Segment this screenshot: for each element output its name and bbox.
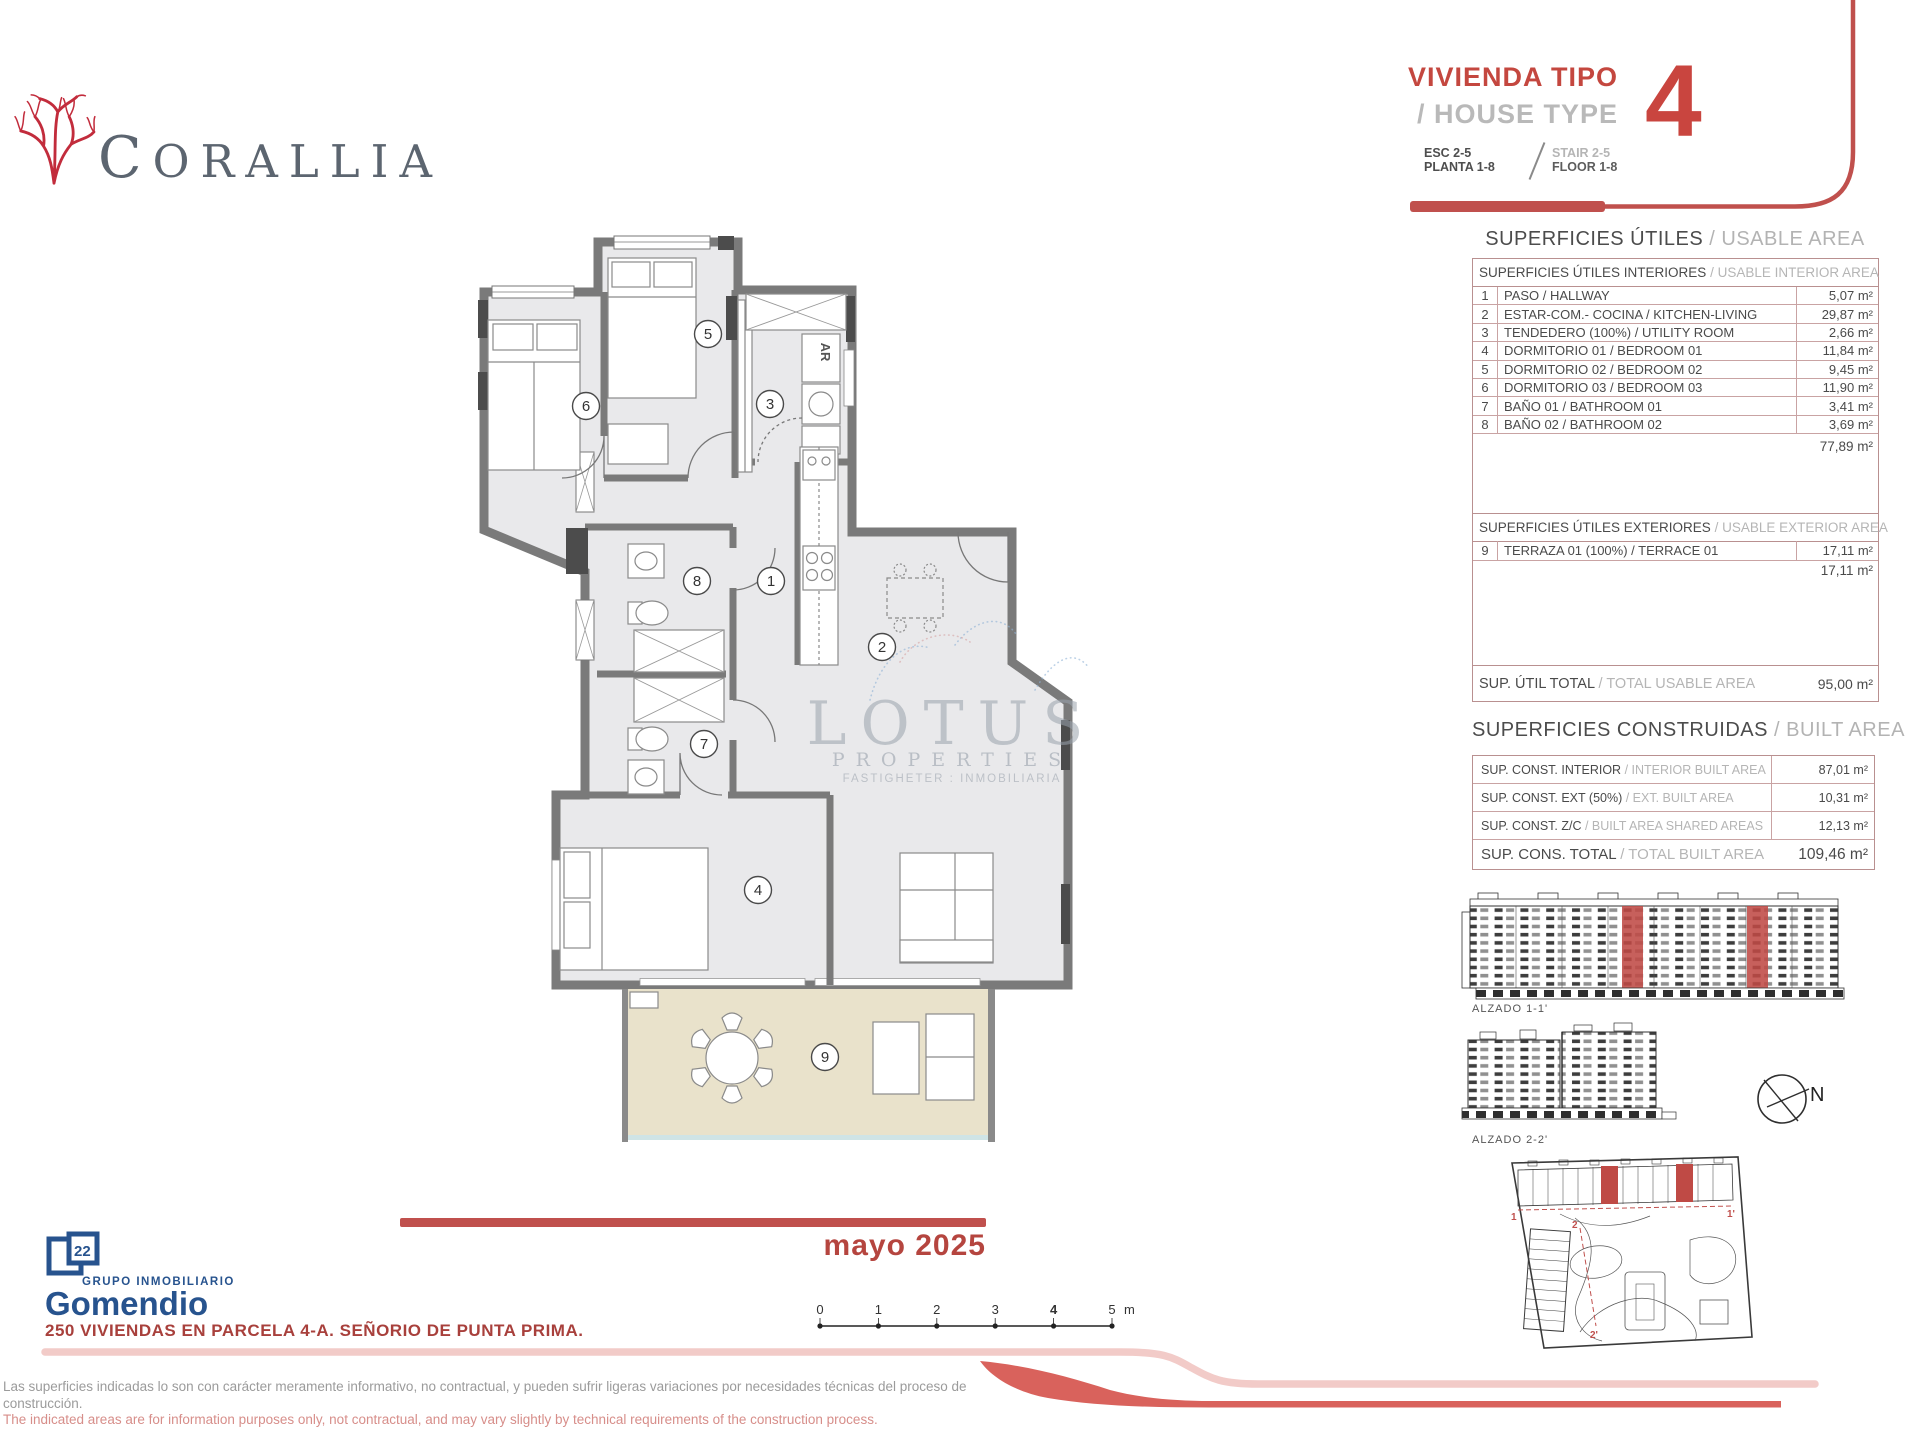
gomendio-icon: 22 xyxy=(46,1231,100,1281)
exterior-header: SUPERFICIES ÚTILES EXTERIORES / USABLE E… xyxy=(1473,513,1878,542)
room-label-4: 4 xyxy=(754,882,762,899)
elevation-1: ALZADO 1-1' xyxy=(1462,893,1844,1015)
sliding-door xyxy=(640,979,805,986)
built-area-title: SUPERFICIES CONSTRUIDAS / BUILT AREA xyxy=(1472,719,1878,742)
usable-grand-total: SUP. ÚTIL TOTAL / TOTAL USABLE AREA 95,0… xyxy=(1473,665,1878,701)
ar-label: AR xyxy=(818,343,833,362)
brand-name: CORALLIA xyxy=(98,130,443,187)
scale-bar: 0 1 2 3 4 5 m xyxy=(780,1295,1160,1340)
watermark-line2: PROPERTIES xyxy=(832,749,1072,771)
sliding-door xyxy=(815,979,980,986)
room-label-8: 8 xyxy=(693,573,701,590)
room-label-7: 7 xyxy=(700,736,708,753)
elevation-2: ALZADO 2-2' xyxy=(1462,1023,1676,1146)
usable-area-table: SUPERFICIES ÚTILES INTERIORES / USABLE I… xyxy=(1472,258,1879,702)
disclaimer-es-line1: Las superficies indicadas lo son con car… xyxy=(3,1379,967,1394)
room-label-5: 5 xyxy=(704,326,712,343)
scale-tick-1: 1 xyxy=(875,1302,882,1317)
table-row: 7 BAÑO 01 / BATHROOM 01 3,41 m² xyxy=(1473,397,1878,415)
alzado2-label: ALZADO 2-2' xyxy=(1472,1134,1548,1146)
table-row: SUP. CONST. Z/C / BUILT AREA SHARED AREA… xyxy=(1473,812,1874,840)
scale-unit: m xyxy=(1124,1302,1135,1317)
exterior-total: 17,11 m² xyxy=(1821,563,1873,578)
room-label-6: 6 xyxy=(582,398,590,415)
table-row: SUP. CONST. INTERIOR / INTERIOR BUILT AR… xyxy=(1473,756,1874,784)
table-row: 5 DORMITORIO 02 / BEDROOM 02 9,45 m² xyxy=(1473,361,1878,379)
corallia-logo: CORALLIA xyxy=(10,92,443,187)
usable-area-title-es: SUPERFICIES ÚTILES xyxy=(1485,228,1703,250)
north-compass: N xyxy=(1758,1075,1824,1123)
room-label-1: 1 xyxy=(767,573,775,590)
room-label-3: 3 xyxy=(766,396,774,413)
scale-tick-0: 0 xyxy=(816,1302,823,1317)
project-title: 250 VIVIENDAS EN PARCELA 4-A. SEÑORIO DE… xyxy=(45,1321,583,1341)
scale-tick-5: 5 xyxy=(1108,1302,1115,1317)
site-plan: 1 1' 2 2' xyxy=(1511,1157,1752,1348)
table-row: 4 DORMITORIO 01 / BEDROOM 01 11,84 m² xyxy=(1473,342,1878,360)
interior-header: SUPERFICIES ÚTILES INTERIORES / USABLE I… xyxy=(1473,259,1878,287)
coral-icon xyxy=(10,92,98,187)
site-mark-1: 1 xyxy=(1511,1212,1517,1223)
room-label-9: 9 xyxy=(821,1049,829,1066)
plan-sheet: CORALLIA VIVIENDA TIPO / HOUSE TYPE 4 ES… xyxy=(0,0,1920,1439)
table-row: SUP. CONST. EXT (50%) / EXT. BUILT AREA … xyxy=(1473,784,1874,812)
gomendio-name: Gomendio xyxy=(45,1285,208,1323)
disclaimer-en: The indicated areas are for information … xyxy=(3,1412,878,1427)
scale-tick-4: 4 xyxy=(1050,1302,1058,1317)
table-row: 3 TENDEDERO (100%) / UTILITY ROOM 2,66 m… xyxy=(1473,324,1878,342)
site-mark-1p: 1' xyxy=(1727,1209,1735,1220)
built-area-title-en: / BUILT AREA xyxy=(1774,719,1905,741)
date-rule xyxy=(400,1218,986,1227)
table-row: 9 TERRAZA 01 (100%) / TERRACE 01 17,11 m… xyxy=(1473,541,1878,561)
table-row: 6 DORMITORIO 03 / BEDROOM 03 11,90 m² xyxy=(1473,379,1878,397)
alzado1-label: ALZADO 1-1' xyxy=(1472,1003,1548,1015)
usable-area-title: SUPERFICIES ÚTILES / USABLE AREA xyxy=(1472,228,1878,251)
room-label-2: 2 xyxy=(878,639,886,656)
watermark-line3: FASTIGHETER : INMOBILIARIA xyxy=(843,773,1062,785)
built-area-table: SUP. CONST. INTERIOR / INTERIOR BUILT AR… xyxy=(1472,755,1875,870)
table-row: 2 ESTAR-COM.- COCINA / KITCHEN-LIVING 29… xyxy=(1473,305,1878,323)
built-area-title-es: SUPERFICIES CONSTRUIDAS xyxy=(1472,719,1768,741)
scale-tick-2: 2 xyxy=(933,1302,940,1317)
table-row: 8 BAÑO 02 / BATHROOM 02 3,69 m² xyxy=(1473,416,1878,434)
floor-plan: AR LOTUS PROPERTIES FASTIGHETER : INMOBI… xyxy=(450,190,1100,1160)
scale-tick-3: 3 xyxy=(992,1302,999,1317)
date-label: mayo 2025 xyxy=(700,1229,986,1263)
usable-area-title-en: / USABLE AREA xyxy=(1709,228,1864,250)
table-row: SUP. CONS. TOTAL / TOTAL BUILT AREA 109,… xyxy=(1473,840,1874,869)
top-right-accent xyxy=(1400,0,1870,220)
svg-text:22: 22 xyxy=(74,1243,91,1260)
table-row: 1 PASO / HALLWAY 5,07 m² xyxy=(1473,287,1878,305)
interior-total: 77,89 m² xyxy=(1820,439,1873,454)
site-mark-2: 2 xyxy=(1572,1220,1578,1231)
disclaimer-es-line2: construcción. xyxy=(3,1396,83,1411)
north-label: N xyxy=(1810,1084,1824,1106)
